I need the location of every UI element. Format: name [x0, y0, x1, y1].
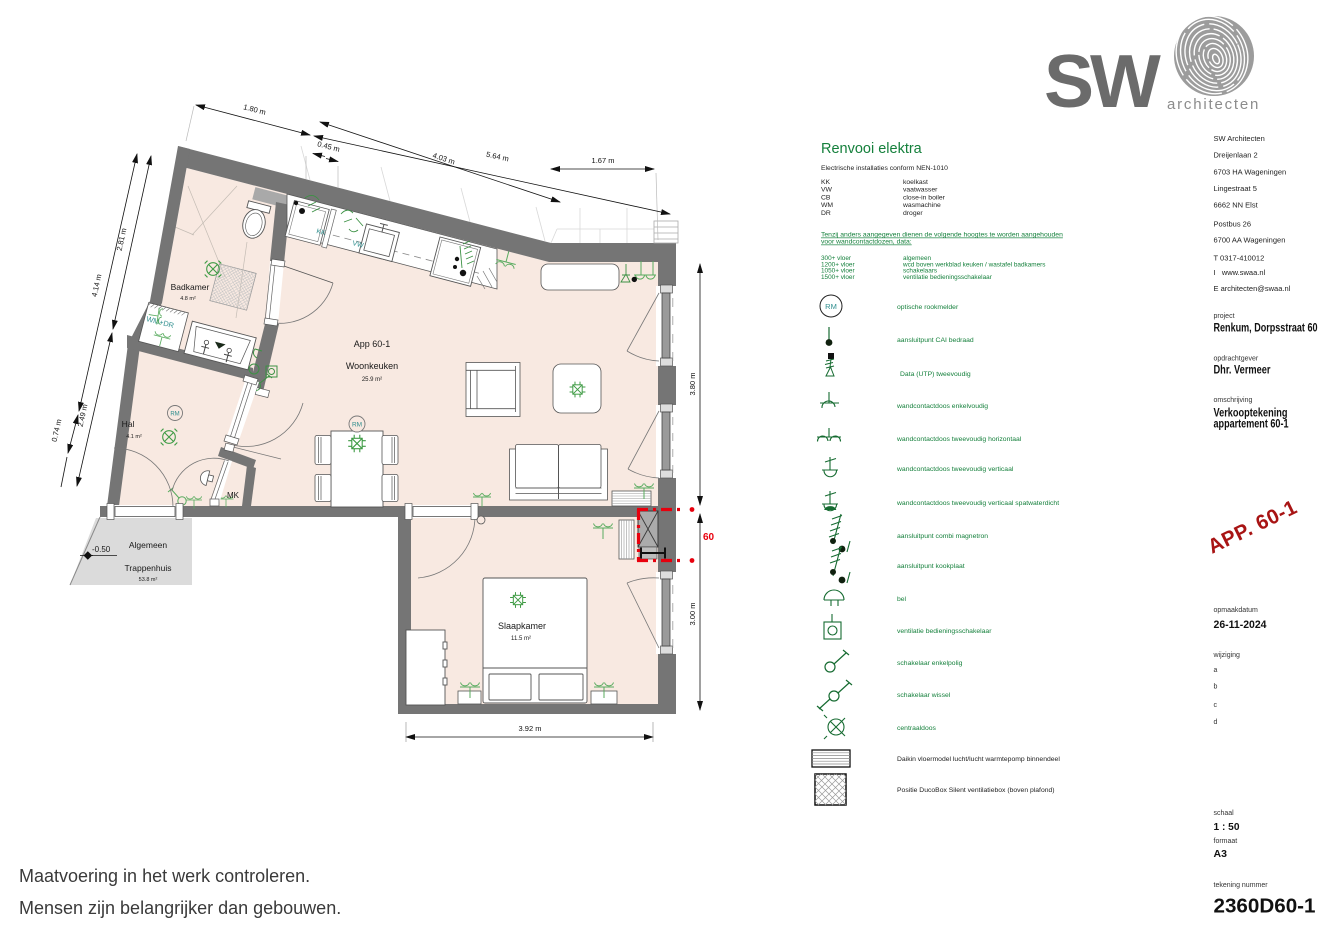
svg-text:App 60-1: App 60-1: [354, 339, 391, 349]
svg-text:1.80 m: 1.80 m: [242, 102, 266, 116]
svg-text:koelkast: koelkast: [903, 179, 928, 186]
svg-text:53.8 m²: 53.8 m²: [139, 577, 158, 583]
svg-text:25.9 m²: 25.9 m²: [362, 377, 382, 383]
svg-text:droger: droger: [903, 210, 923, 217]
svg-text:I www.swaa.nl: I www.swaa.nl: [1214, 268, 1266, 277]
svg-text:26-11-2024: 26-11-2024: [1214, 619, 1268, 631]
svg-text:a: a: [1214, 667, 1218, 674]
svg-text:wandcontactdoos tweevoudig ver: wandcontactdoos tweevoudig verticaal spa…: [896, 500, 1059, 507]
svg-text:omschrijving: omschrijving: [1214, 397, 1253, 404]
svg-text:Daikin vloermodel lucht/lucht: Daikin vloermodel lucht/lucht warmtepomp…: [897, 756, 1060, 763]
svg-text:b: b: [1214, 684, 1218, 691]
svg-text:voor wandcontactdozen, data:: voor wandcontactdozen, data:: [821, 239, 912, 246]
svg-text:CB: CB: [821, 194, 831, 201]
svg-text:DR: DR: [821, 210, 831, 217]
svg-text:KK: KK: [821, 179, 831, 186]
svg-text:4.1 m²: 4.1 m²: [126, 434, 142, 440]
svg-text:Positie DucoBox Silent ventila: Positie DucoBox Silent ventilatiebox (bo…: [897, 787, 1055, 794]
svg-text:appartement 60-1: appartement 60-1: [1214, 417, 1289, 431]
svg-text:Dreijenlaan 2: Dreijenlaan 2: [1214, 151, 1258, 160]
svg-text:APP. 60-1: APP. 60-1: [1204, 496, 1301, 559]
svg-text:2.49 m: 2.49 m: [76, 403, 90, 427]
svg-text:2.81 m: 2.81 m: [115, 227, 129, 251]
svg-text:3.80 m: 3.80 m: [688, 373, 697, 396]
svg-text:opmaakdatum: opmaakdatum: [1214, 607, 1259, 614]
svg-text:2360D60-1: 2360D60-1: [1214, 895, 1316, 918]
svg-text:schaal: schaal: [1214, 810, 1235, 817]
svg-text:RM: RM: [352, 422, 362, 429]
svg-text:VW: VW: [821, 187, 833, 194]
svg-text:Tenzij anders aangegeven diene: Tenzij anders aangegeven dienen de volge…: [821, 232, 1063, 239]
svg-text:c: c: [1214, 702, 1218, 709]
svg-text:d: d: [1214, 719, 1218, 726]
svg-text:1 : 50: 1 : 50: [1214, 821, 1240, 833]
svg-text:4.8 m²: 4.8 m²: [180, 296, 196, 302]
svg-text:1.67 m: 1.67 m: [592, 156, 615, 165]
svg-text:6700 AA Wageningen: 6700 AA Wageningen: [1214, 235, 1286, 244]
svg-text:SW Architecten: SW Architecten: [1214, 134, 1265, 143]
svg-text:bel: bel: [897, 596, 907, 603]
svg-text:3.00 m: 3.00 m: [688, 603, 697, 626]
svg-text:1500+ vloer: 1500+ vloer: [821, 274, 855, 281]
svg-text:vaatwasser: vaatwasser: [903, 187, 938, 194]
svg-text:MK: MK: [227, 491, 240, 500]
svg-text:ventilatie bedieningsschakelaa: ventilatie bedieningsschakelaar: [897, 628, 992, 635]
svg-text:Electrische installaties confo: Electrische installaties conform NEN-101…: [821, 165, 948, 172]
svg-text:Woonkeuken: Woonkeuken: [346, 361, 398, 371]
svg-text:Data (UTP) tweevoudig: Data (UTP) tweevoudig: [900, 371, 971, 378]
svg-text:Renkum, Dorpsstraat 60: Renkum, Dorpsstraat 60: [1214, 321, 1318, 335]
svg-text:Trappenhuis: Trappenhuis: [125, 563, 172, 573]
svg-text:A3: A3: [1214, 848, 1228, 860]
svg-text:Lingestraat 5: Lingestraat 5: [1214, 184, 1257, 193]
svg-text:Slaapkamer: Slaapkamer: [498, 621, 546, 631]
svg-text:-0.50: -0.50: [92, 545, 111, 554]
svg-text:wandcontactdoos enkelvoudig: wandcontactdoos enkelvoudig: [896, 403, 988, 410]
svg-text:schakelaar wissel: schakelaar wissel: [897, 692, 951, 699]
svg-text:0.74 m: 0.74 m: [50, 418, 64, 442]
svg-text:centraaldoos: centraaldoos: [897, 725, 937, 732]
svg-text:WM: WM: [821, 202, 833, 209]
svg-text:architecten: architecten: [1167, 96, 1260, 113]
svg-text:Badkamer: Badkamer: [171, 282, 210, 292]
svg-text:optische rookmelder: optische rookmelder: [897, 304, 959, 311]
svg-text:schakelaar enkelpolig: schakelaar enkelpolig: [897, 660, 963, 667]
svg-text:T 0317-410012: T 0317-410012: [1214, 253, 1265, 262]
svg-text:3.92 m: 3.92 m: [519, 724, 542, 733]
svg-text:aansluitpunt kookplaat: aansluitpunt kookplaat: [897, 563, 965, 570]
svg-text:close-in boiler: close-in boiler: [903, 194, 946, 201]
svg-text:wijziging: wijziging: [1213, 652, 1241, 659]
svg-text:wandcontactdoos tweevoudig hor: wandcontactdoos tweevoudig horizontaal: [896, 436, 1022, 443]
svg-text:project: project: [1214, 313, 1235, 320]
svg-text:RM: RM: [825, 302, 837, 311]
svg-text:aansluitpunt combi magnetron: aansluitpunt combi magnetron: [897, 533, 988, 540]
svg-text:Algemeen: Algemeen: [129, 540, 168, 550]
svg-text:aansluitpunt CAI bedraad: aansluitpunt CAI bedraad: [897, 337, 974, 344]
svg-text:Mensen zijn belangrijker dan g: Mensen zijn belangrijker dan gebouwen.: [19, 898, 341, 918]
svg-text:Dhr. Vermeer: Dhr. Vermeer: [1214, 363, 1271, 377]
svg-text:opdrachtgever: opdrachtgever: [1214, 356, 1259, 363]
svg-text:Postbus 26: Postbus 26: [1214, 220, 1252, 229]
svg-text:wasmachine: wasmachine: [902, 202, 941, 209]
svg-text:ventilatie bedieningsschakelaa: ventilatie bedieningsschakelaar: [903, 274, 993, 281]
svg-text:6662 NN Elst: 6662 NN Elst: [1214, 201, 1259, 210]
svg-text:60: 60: [703, 532, 715, 543]
svg-text:Hal: Hal: [122, 419, 135, 429]
svg-text:4.14 m: 4.14 m: [90, 273, 104, 297]
svg-text:0.45 m: 0.45 m: [316, 139, 340, 153]
svg-text:E architecten@swaa.nl: E architecten@swaa.nl: [1214, 284, 1291, 293]
svg-text:formaat: formaat: [1214, 838, 1238, 845]
svg-text:Renvooi elektra: Renvooi elektra: [821, 141, 923, 157]
svg-text:Maatvoering in het werk contro: Maatvoering in het werk controleren.: [19, 866, 310, 886]
svg-text:RM: RM: [170, 412, 179, 418]
svg-text:wandcontactdoos tweevoudig ver: wandcontactdoos tweevoudig verticaal: [896, 466, 1014, 473]
svg-text:5.64 m: 5.64 m: [485, 150, 509, 164]
svg-text:tekening nummer: tekening nummer: [1214, 882, 1269, 889]
svg-text:6703 HA Wageningen: 6703 HA Wageningen: [1214, 167, 1287, 176]
svg-text:SW: SW: [1044, 39, 1161, 123]
svg-text:11.5 m²: 11.5 m²: [511, 636, 531, 642]
